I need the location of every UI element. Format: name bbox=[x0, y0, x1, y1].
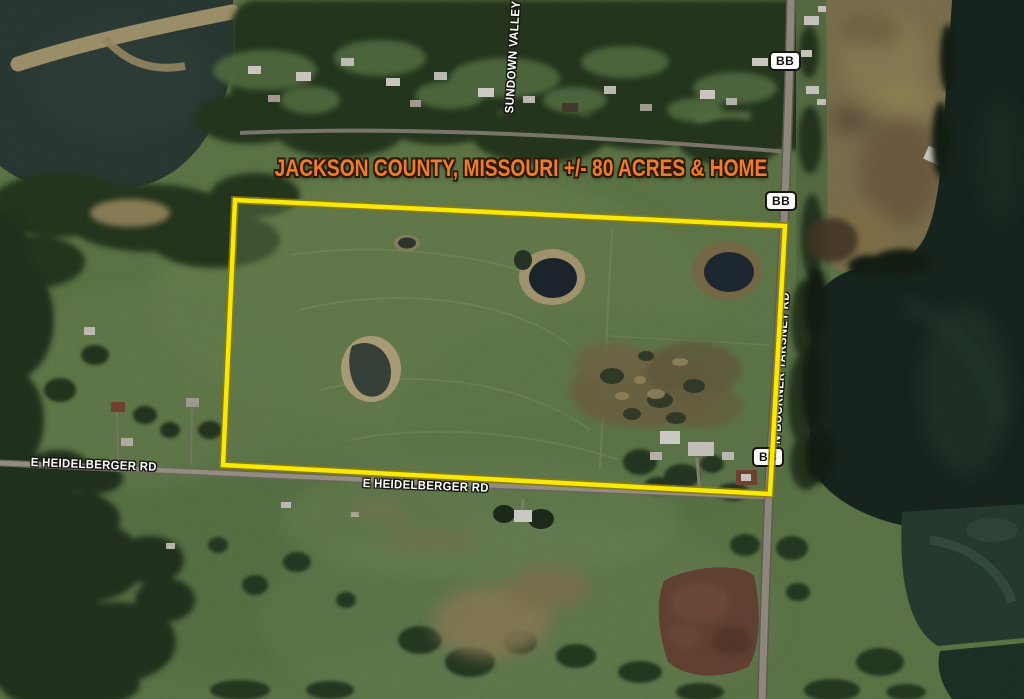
aerial-property-map: E HEIDELBERGER RD E HEIDELBERGER RD N BU… bbox=[0, 0, 1024, 699]
satellite-terrain bbox=[0, 0, 1024, 699]
map-title: JACKSON COUNTY, MISSOURI +/- 80 ACRES & … bbox=[275, 155, 768, 183]
